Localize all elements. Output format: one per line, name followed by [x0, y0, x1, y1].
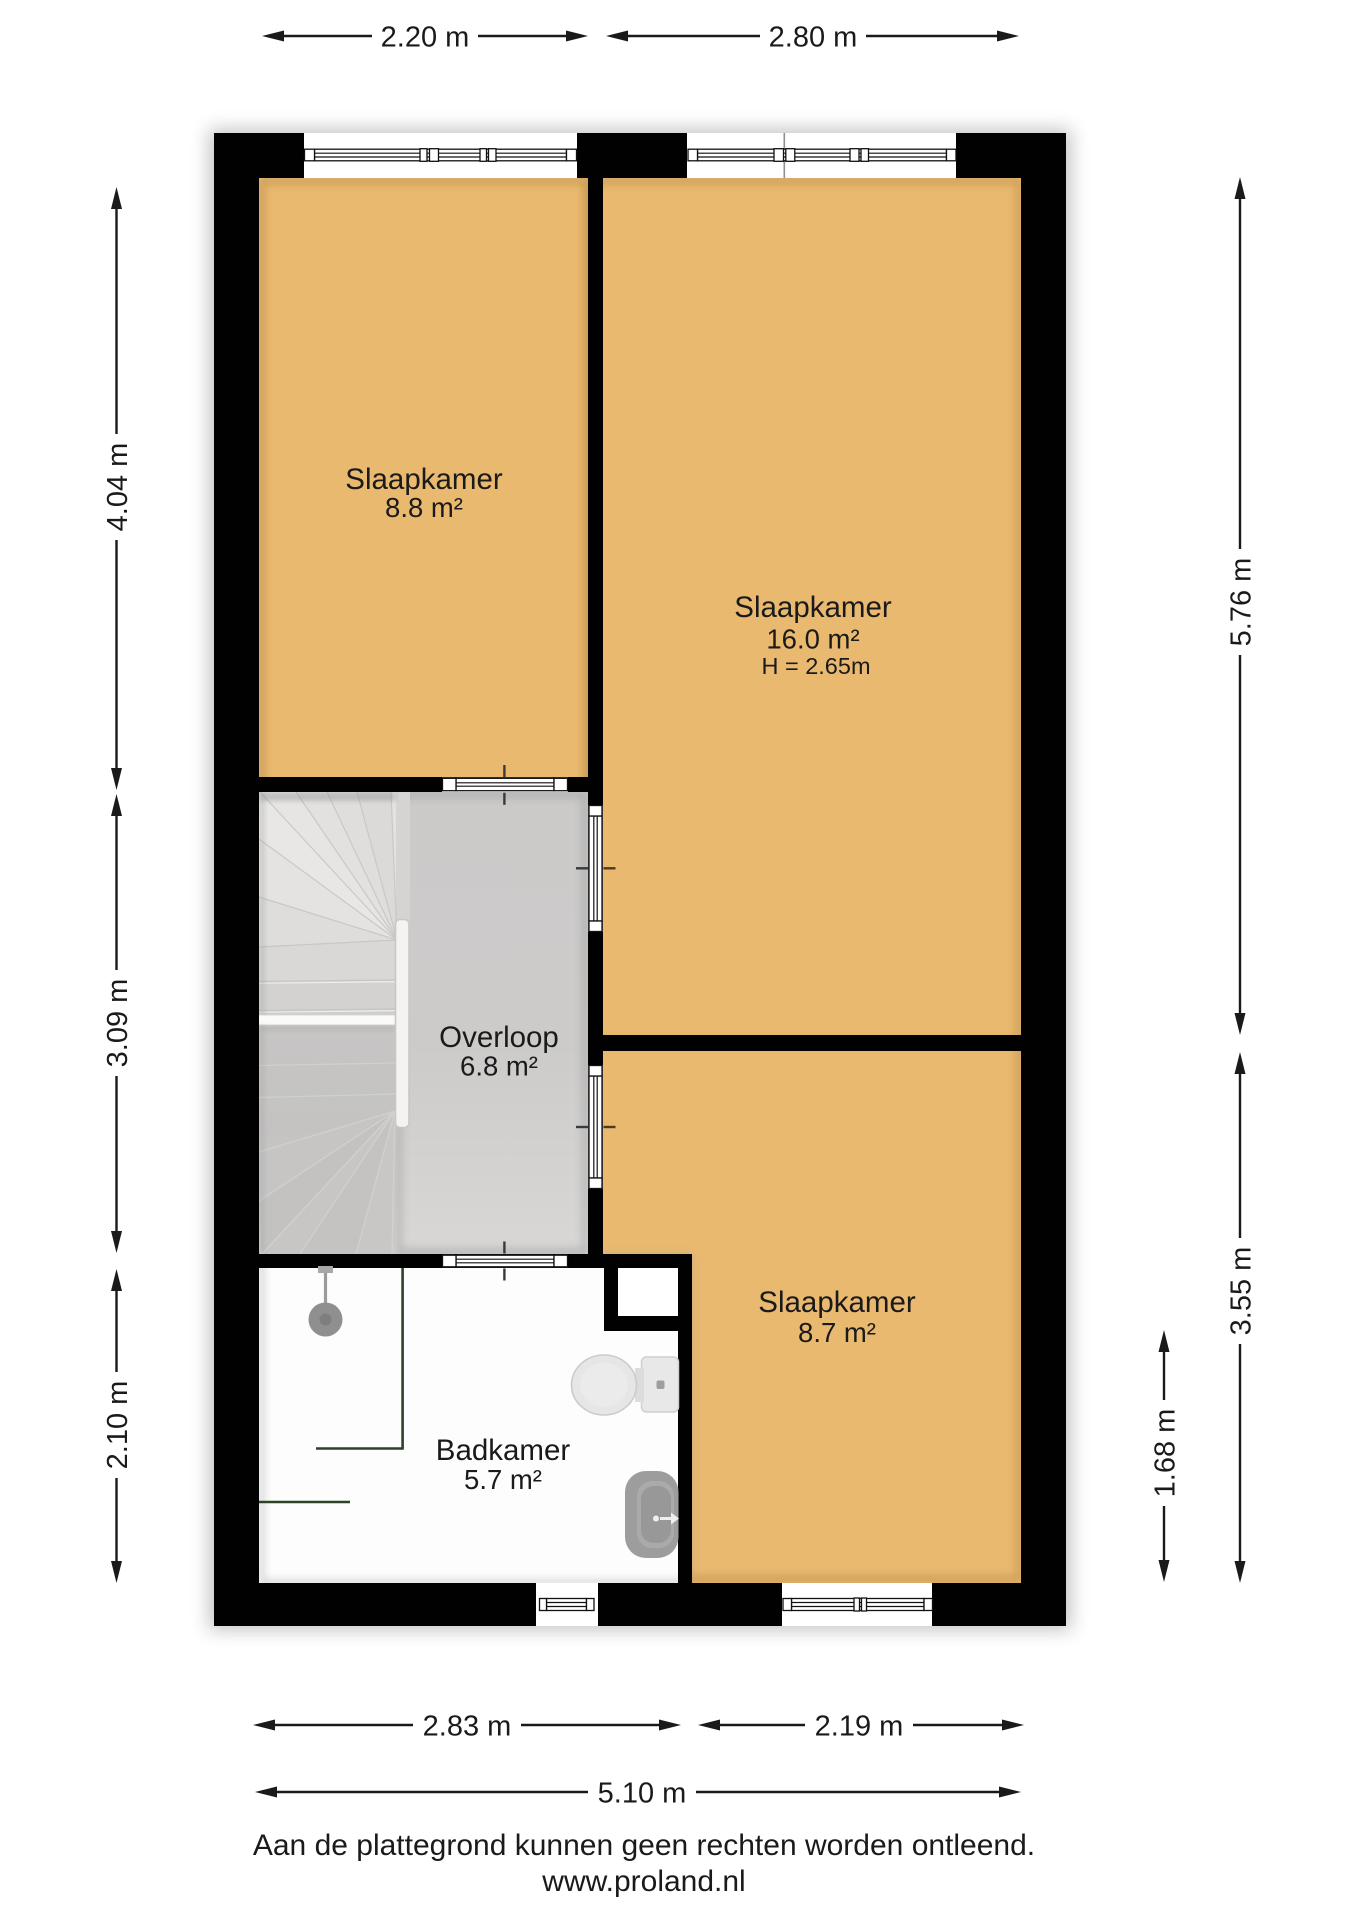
- svg-text:www.proland.nl: www.proland.nl: [541, 1865, 745, 1898]
- svg-text:4.04 m: 4.04 m: [102, 443, 134, 532]
- svg-text:8.8 m²: 8.8 m²: [385, 492, 463, 523]
- svg-text:5.7 m²: 5.7 m²: [464, 1464, 542, 1495]
- svg-text:5.76 m: 5.76 m: [1226, 558, 1258, 647]
- svg-text:8.7 m²: 8.7 m²: [798, 1317, 876, 1348]
- svg-text:Aan de plattegrond kunnen geen: Aan de plattegrond kunnen geen rechten w…: [253, 1829, 1035, 1862]
- svg-text:6.8 m²: 6.8 m²: [460, 1051, 538, 1082]
- svg-text:5.10 m: 5.10 m: [598, 1778, 687, 1810]
- svg-text:H = 2.65m: H = 2.65m: [761, 653, 870, 679]
- svg-text:1.68 m: 1.68 m: [1150, 1409, 1182, 1498]
- svg-text:2.83 m: 2.83 m: [423, 1711, 512, 1743]
- svg-text:Slaapkamer: Slaapkamer: [758, 1286, 916, 1319]
- svg-text:2.20 m: 2.20 m: [381, 22, 470, 54]
- svg-text:2.80 m: 2.80 m: [769, 22, 858, 54]
- svg-text:16.0 m²: 16.0 m²: [766, 624, 859, 655]
- svg-text:2.10 m: 2.10 m: [102, 1381, 134, 1470]
- svg-text:3.55 m: 3.55 m: [1226, 1247, 1258, 1336]
- svg-text:Slaapkamer: Slaapkamer: [734, 591, 892, 624]
- svg-text:3.09 m: 3.09 m: [102, 979, 134, 1068]
- svg-text:2.19 m: 2.19 m: [815, 1711, 904, 1743]
- svg-text:Overloop: Overloop: [439, 1021, 559, 1054]
- svg-text:Badkamer: Badkamer: [436, 1434, 571, 1467]
